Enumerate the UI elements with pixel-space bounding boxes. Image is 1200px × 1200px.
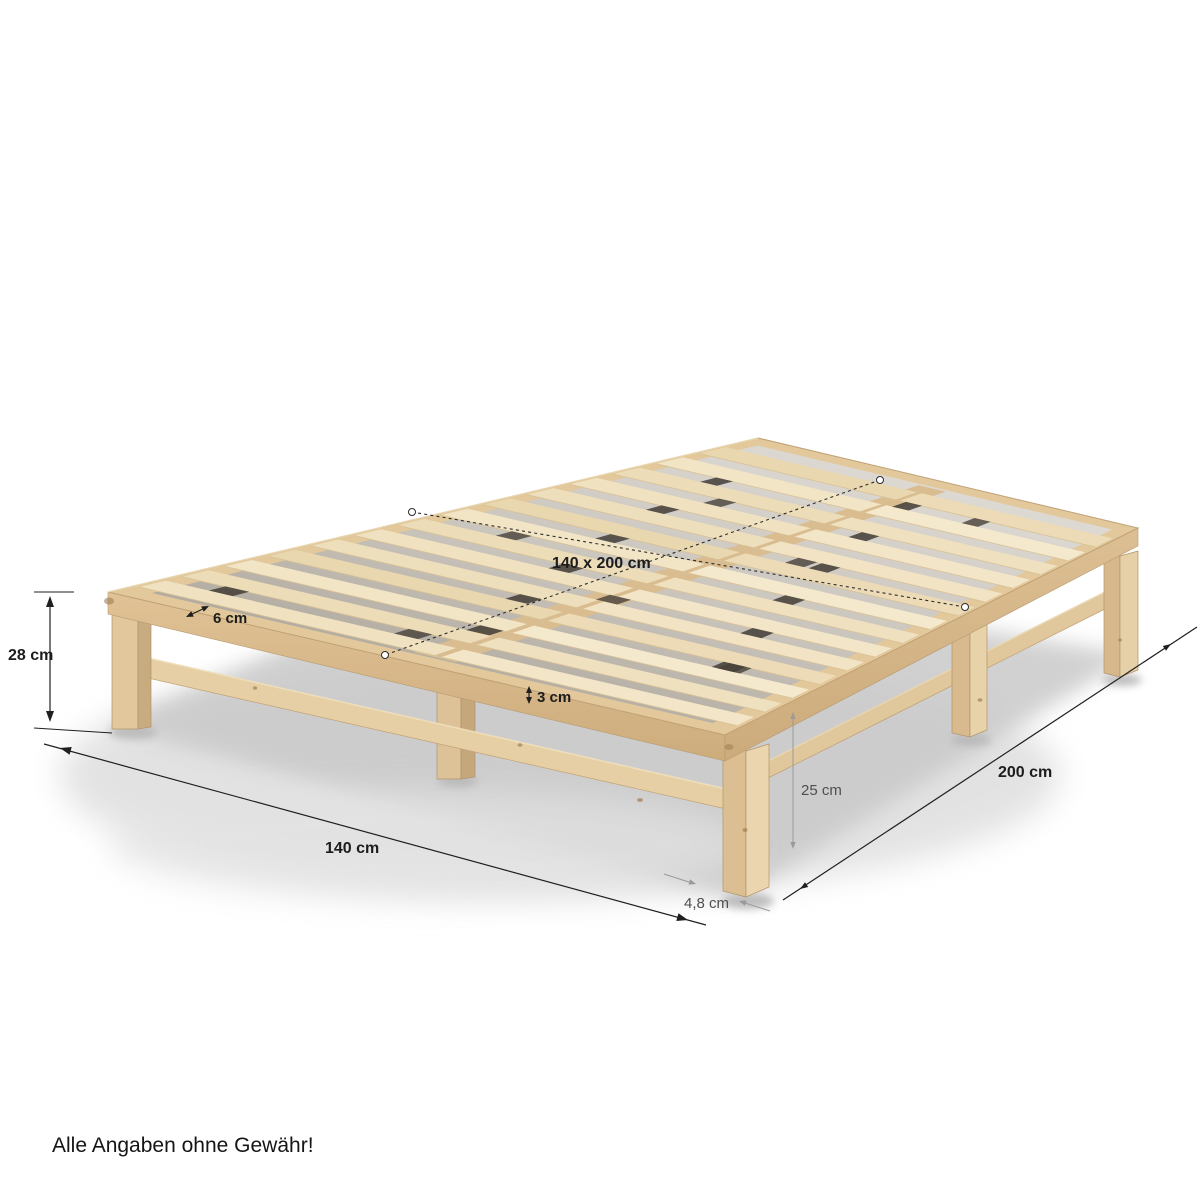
guide-endpoint [382,652,389,659]
shadow [110,790,750,900]
wood-knot [253,686,257,690]
wood-knot [1118,639,1122,642]
bed-part [112,610,138,729]
slat-width-label: 6 cm [213,610,247,627]
guide-endpoint [877,477,884,484]
bed-part [1120,551,1138,677]
bed-part [970,617,987,737]
bed-width-label: 140 cm [325,840,379,857]
arrowhead [46,711,54,722]
wood-knot [978,698,983,702]
arrowhead [800,882,808,889]
bed-part [723,745,746,897]
slat-thickness-label: 3 cm [537,689,571,706]
bed-length-label: 200 cm [998,764,1052,781]
wood-knot [637,798,643,802]
bed-part [1104,552,1120,677]
under-clearance-label: 25 cm [801,782,842,799]
wood-knot [518,743,523,747]
wood-knot [743,828,748,832]
bed-part [138,608,151,729]
wood-detail [104,598,114,605]
disclaimer-text: Alle Angaben ohne Gewähr! [52,1134,314,1157]
bed-dimension-diagram: 28 cm 140 cm 200 cm 140 x 200 cm [0,0,1200,1200]
bed-illustration [60,438,1142,909]
frame-height-label: 28 cm [8,647,53,664]
leg-thickness-label: 4,8 cm [684,895,729,912]
guide-endpoint [962,604,969,611]
wood-detail [725,744,734,750]
guide-endpoint [409,509,416,516]
arrowhead [1163,644,1171,651]
bed-part [746,744,769,897]
product-dimension-image: 28 cm 140 cm 200 cm 140 x 200 cm [0,0,1200,1200]
arrowhead [46,596,54,607]
surface-size-label: 140 x 200 cm [552,555,651,572]
dim-frame-height: 28 cm [8,592,112,733]
arrowhead [676,913,688,921]
